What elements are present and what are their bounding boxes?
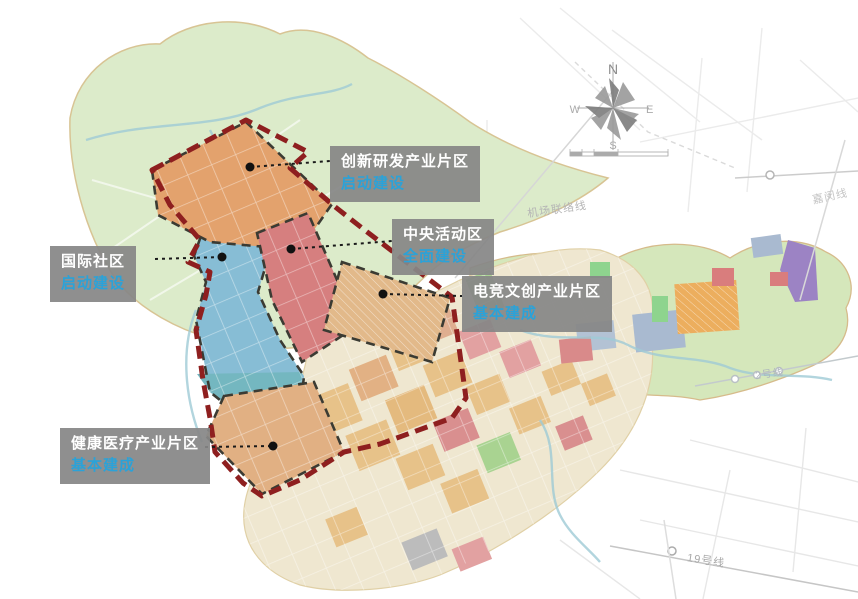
label-innovation-zone: 创新研发产业片区 启动建设 bbox=[330, 146, 480, 202]
label-central-status: 全面建设 bbox=[403, 246, 483, 268]
label-health-status: 基本建成 bbox=[71, 455, 199, 477]
label-central-zone: 中央活动区 全面建设 bbox=[392, 219, 494, 275]
label-esports-status: 基本建成 bbox=[473, 303, 601, 325]
label-health-title: 健康医疗产业片区 bbox=[71, 435, 199, 452]
compass-e: E bbox=[646, 104, 653, 116]
planning-map: N E S W 创新研发产业片区 启动建设 中央活动区 全面建设 电竞文创产业片… bbox=[0, 0, 858, 599]
scale-bar bbox=[570, 149, 668, 156]
label-international-status: 启动建设 bbox=[61, 273, 125, 295]
label-health-zone: 健康医疗产业片区 基本建成 bbox=[60, 428, 210, 484]
label-central-title: 中央活动区 bbox=[403, 226, 483, 243]
label-esports-title: 电竞文创产业片区 bbox=[473, 283, 601, 300]
label-innovation-status: 启动建设 bbox=[341, 173, 469, 195]
label-innovation-title: 创新研发产业片区 bbox=[341, 153, 469, 170]
label-esports-zone: 电竞文创产业片区 基本建成 bbox=[462, 276, 612, 332]
label-international-title: 国际社区 bbox=[61, 253, 125, 270]
compass-n: N bbox=[608, 61, 618, 77]
compass-w: W bbox=[570, 104, 581, 116]
label-international-zone: 国际社区 启动建设 bbox=[50, 246, 136, 302]
compass-s: S bbox=[609, 140, 616, 152]
